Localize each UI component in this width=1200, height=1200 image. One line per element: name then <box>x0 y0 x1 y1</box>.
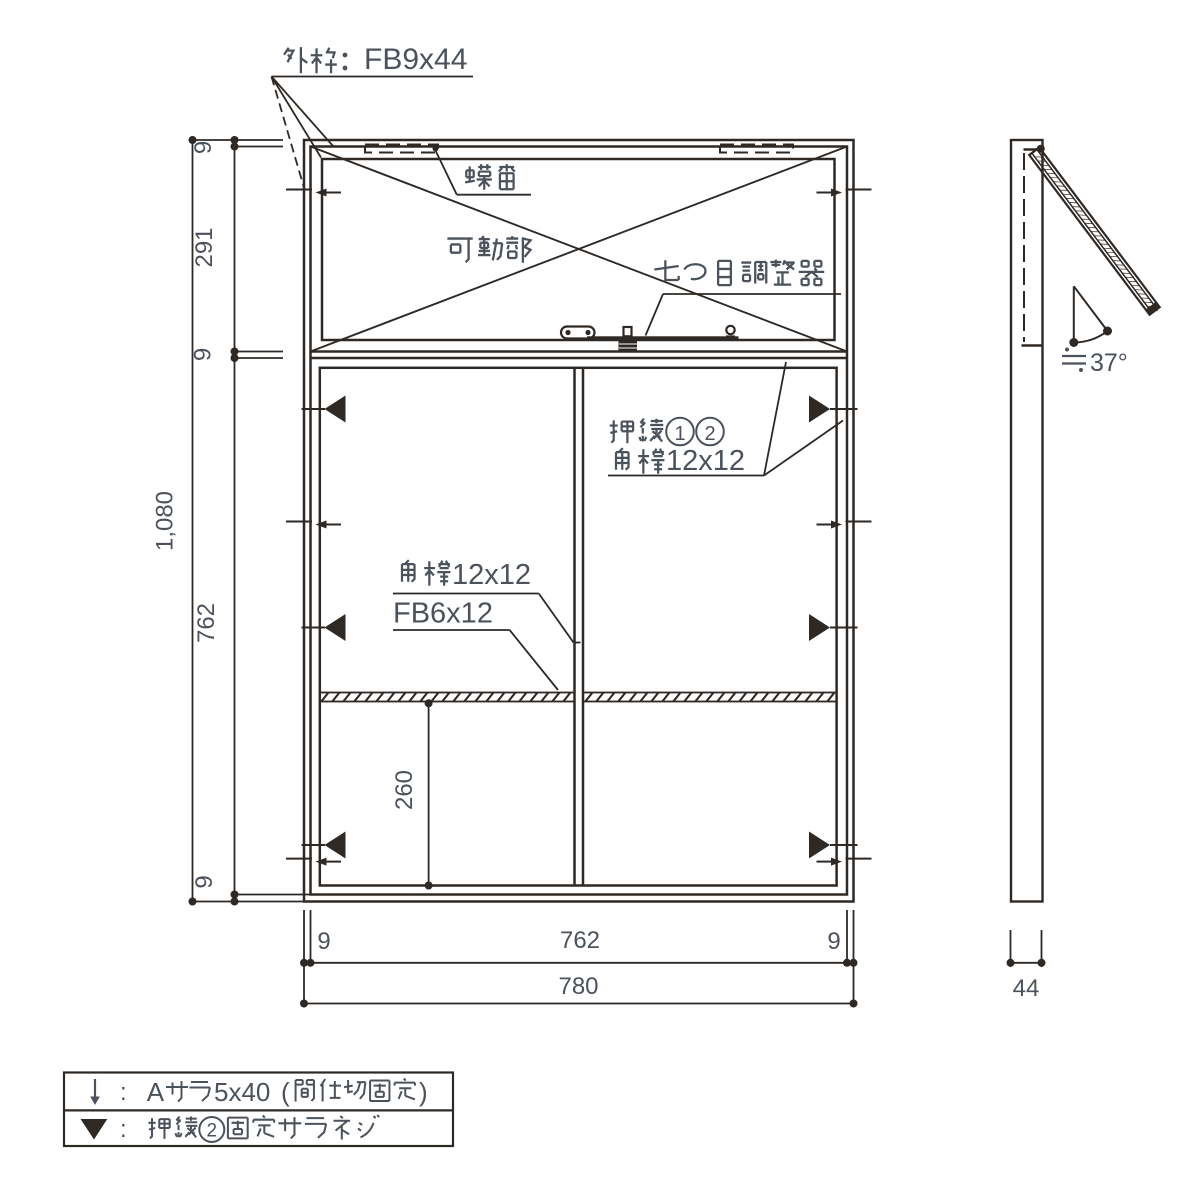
svg-text::: : <box>120 1079 127 1106</box>
svg-text:(: ( <box>281 1077 290 1107</box>
svg-text:2: 2 <box>207 1121 218 1142</box>
svg-text:780: 780 <box>558 973 598 1000</box>
svg-text:): ) <box>419 1077 428 1107</box>
svg-text:12x12: 12x12 <box>666 445 745 477</box>
svg-text:FB6x12: FB6x12 <box>393 598 493 630</box>
svg-text:260: 260 <box>391 770 418 810</box>
svg-text:9: 9 <box>827 928 840 955</box>
svg-text::: : <box>120 1116 127 1143</box>
svg-text:291: 291 <box>191 227 218 267</box>
svg-text:1,080: 1,080 <box>152 491 179 551</box>
svg-text:FB9x44: FB9x44 <box>364 43 467 76</box>
svg-text:762: 762 <box>193 603 220 643</box>
svg-text:9: 9 <box>191 875 218 888</box>
svg-text:762: 762 <box>560 927 600 954</box>
svg-text:5x40: 5x40 <box>214 1077 270 1107</box>
svg-text:9: 9 <box>190 141 217 154</box>
svg-text:A: A <box>147 1077 165 1107</box>
svg-text:9: 9 <box>190 348 217 361</box>
svg-text:2: 2 <box>704 423 715 445</box>
svg-text:12x12: 12x12 <box>452 559 531 591</box>
svg-text:44: 44 <box>1013 975 1040 1002</box>
svg-text:37°: 37° <box>1090 349 1128 377</box>
svg-text:1: 1 <box>674 423 685 445</box>
svg-text:9: 9 <box>317 928 330 955</box>
